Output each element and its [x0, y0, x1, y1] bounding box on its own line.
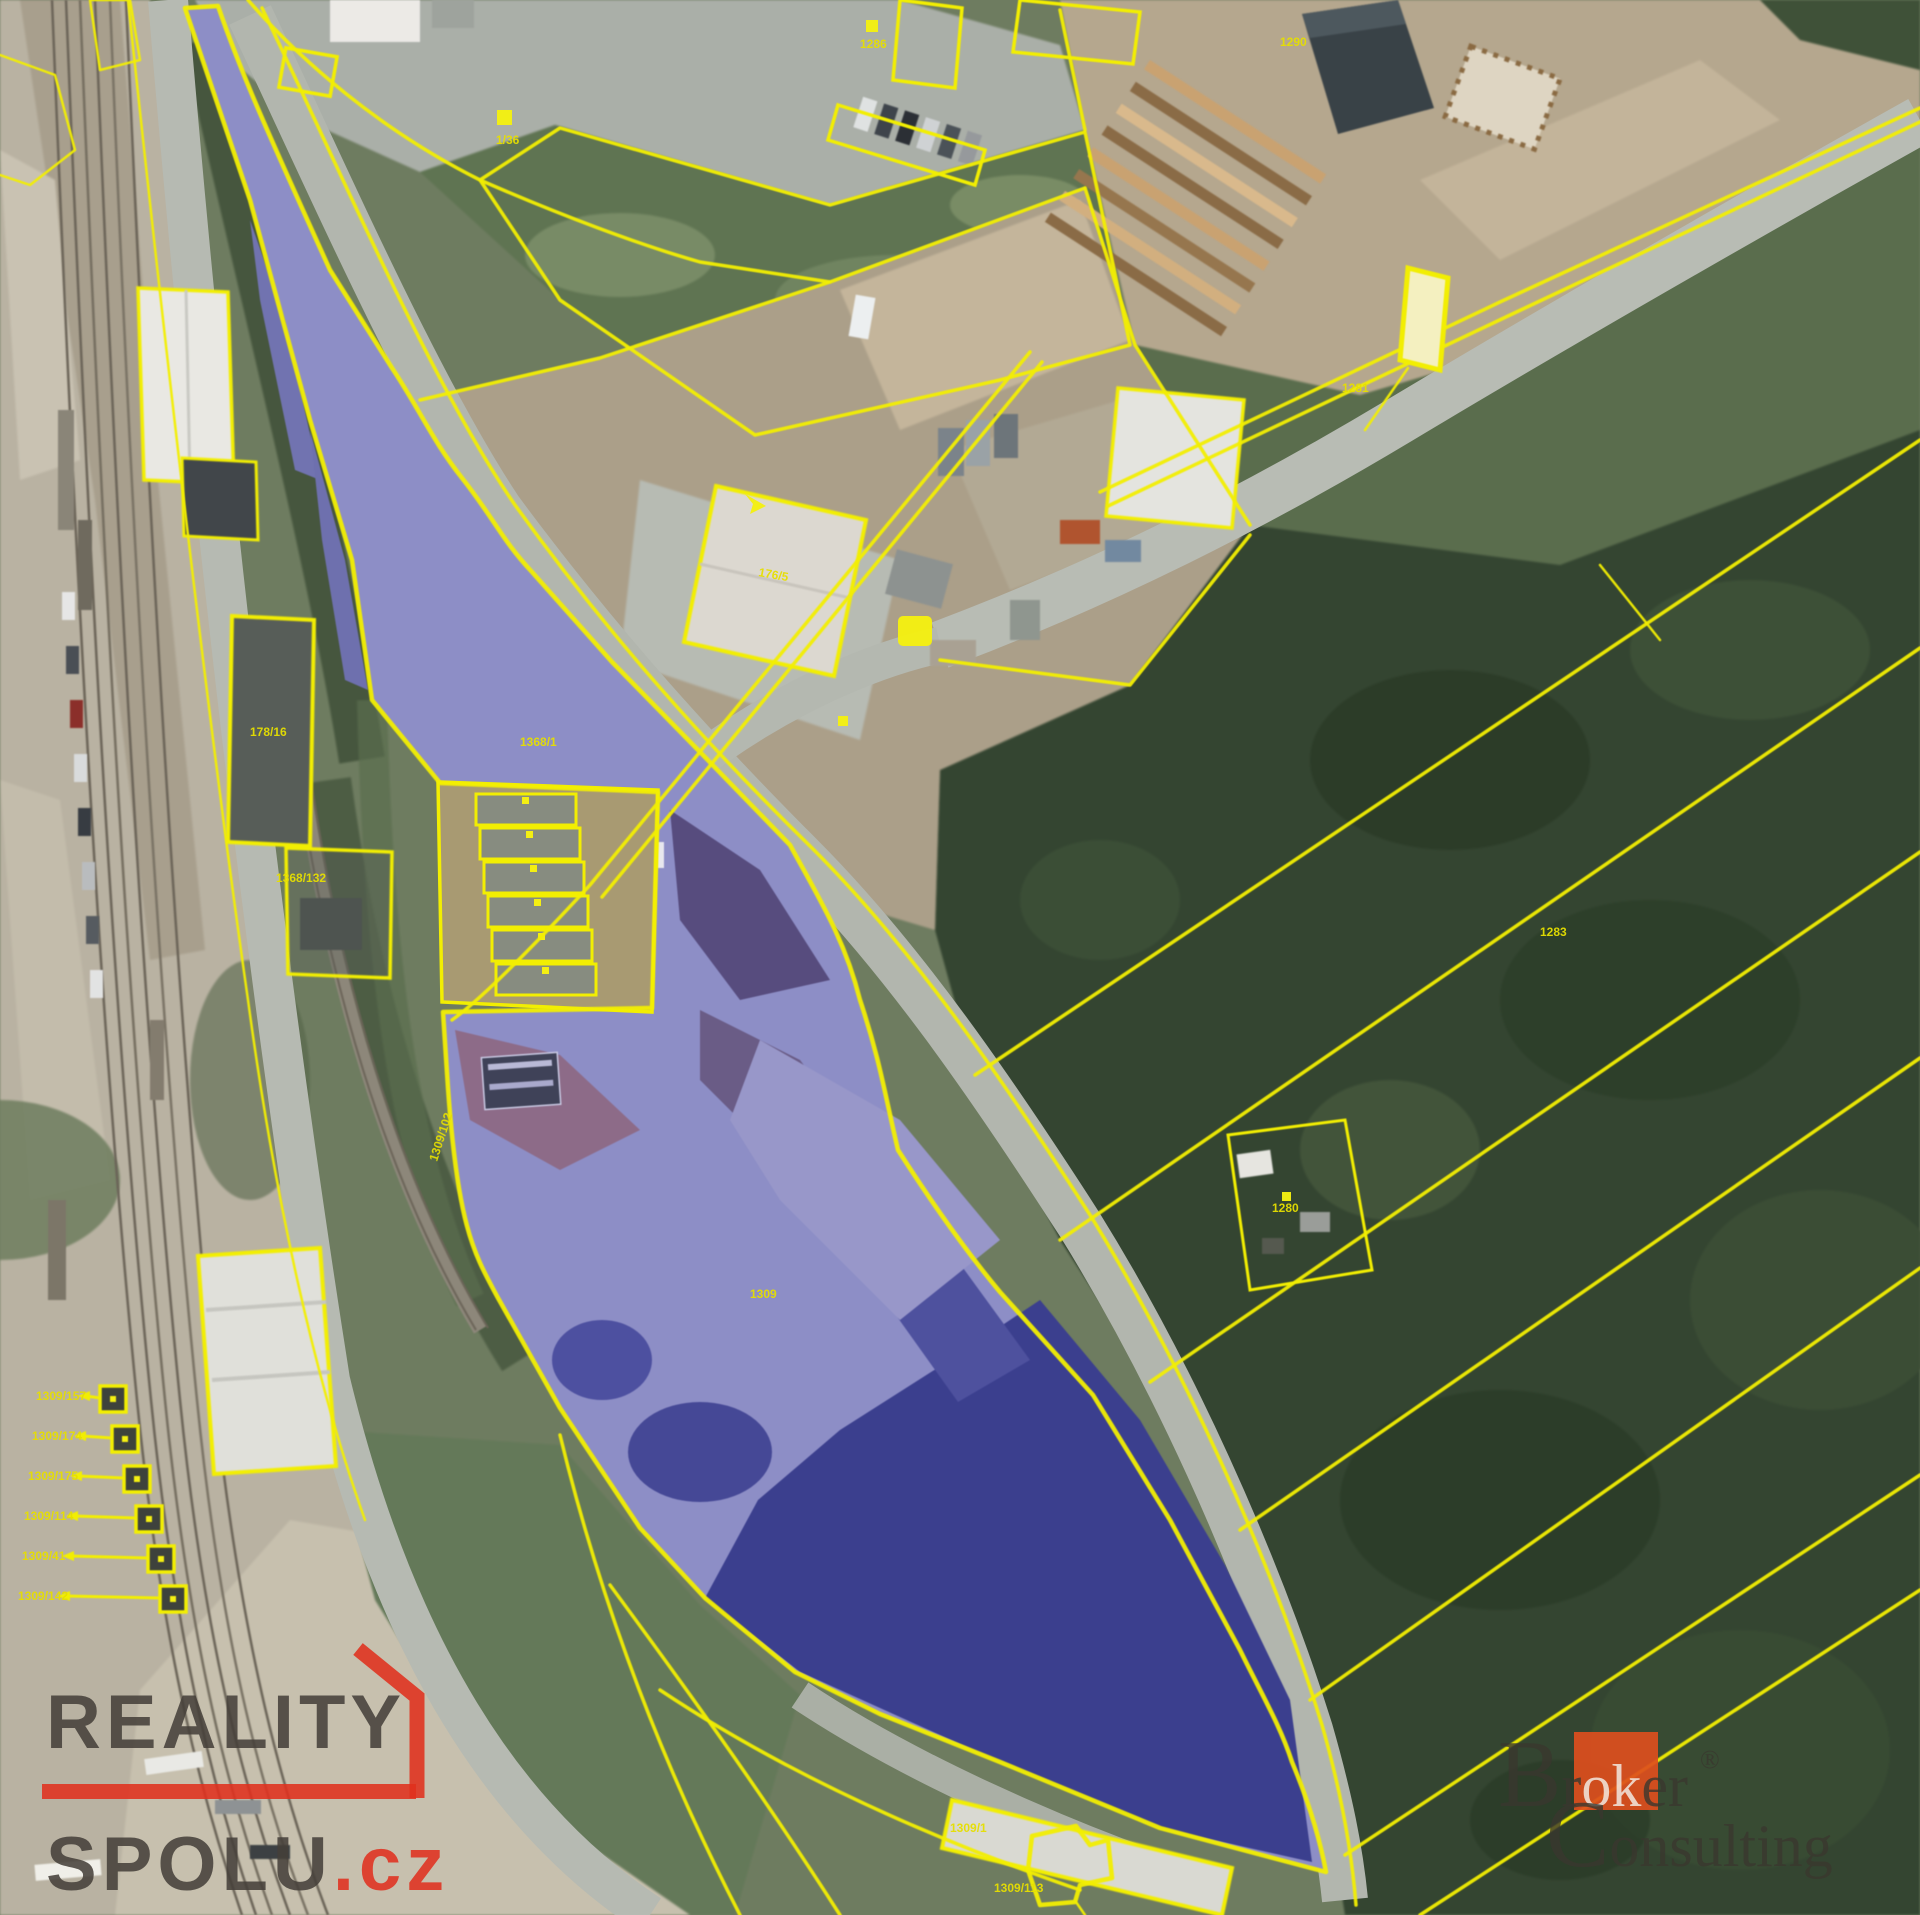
parcel-label: 1283: [1540, 925, 1567, 939]
parcel-label: 1/36: [496, 133, 520, 147]
registered-mark-icon: ®: [1700, 1745, 1720, 1774]
parcel-label: 1309/113: [994, 1881, 1044, 1895]
parcel-label: 178/16: [250, 725, 287, 739]
cadastral-map-canvas[interactable]: 1/36 1286 1290 178/16 1368/132 176/5 136…: [0, 0, 1920, 1915]
small-parcel-grid: [438, 782, 658, 1012]
parcel-marker: [497, 110, 512, 125]
spolu-word: SPOLU.cz: [46, 1822, 449, 1907]
parcel-label: 1281: [1342, 381, 1369, 395]
parcel-marker: [898, 616, 932, 646]
reality-word: REALITY: [46, 1680, 406, 1765]
cz-suffix: .cz: [333, 1822, 449, 1907]
parcel-label: 1368/1: [520, 735, 557, 749]
parcel-label: 1309/142: [18, 1589, 68, 1603]
parcel-marker: [1282, 1192, 1291, 1201]
parcel-marker: [838, 716, 848, 726]
parcel-marker: [866, 20, 878, 32]
parcel-label: 1309/114: [24, 1509, 74, 1523]
parcel-label: 1309/174: [32, 1429, 82, 1443]
parcel-label: 1286: [860, 37, 887, 51]
parcel-label: 1309/175: [28, 1469, 78, 1483]
parcel-label: 1309/1: [950, 1821, 987, 1835]
reality-underline: [42, 1784, 416, 1799]
parcel-label: 1368/132: [276, 871, 326, 885]
parcel-label: 1309/157: [36, 1389, 86, 1403]
parcel-label: 1280: [1272, 1201, 1299, 1215]
parcel-label: 1290: [1280, 35, 1307, 49]
parcel-label: 1309/41: [22, 1549, 66, 1563]
parcel-label: 1309: [750, 1287, 777, 1301]
